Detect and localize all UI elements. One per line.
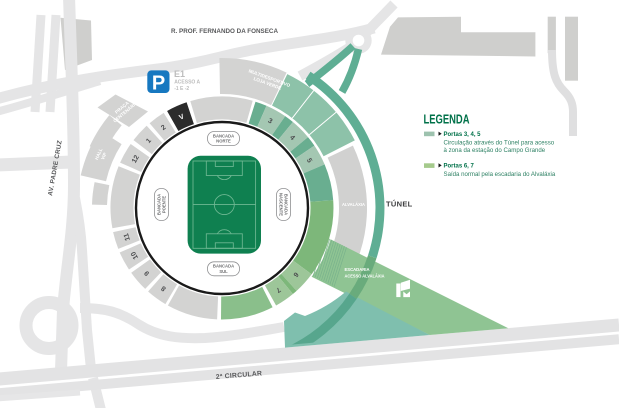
svg-text:NORTE: NORTE xyxy=(216,139,231,144)
svg-text:P: P xyxy=(152,72,165,94)
svg-text:ACESSO A: ACESSO A xyxy=(174,80,200,86)
svg-text:Circulação através do Túnel pa: Circulação através do Túnel para acesso xyxy=(444,139,555,146)
svg-text:NASCENTE: NASCENTE xyxy=(279,193,284,216)
svg-text:SUL: SUL xyxy=(219,269,228,274)
svg-text:Portas 6, 7: Portas 6, 7 xyxy=(444,164,475,170)
svg-text:R. PROF. FERNANDO DA FONSECA: R. PROF. FERNANDO DA FONSECA xyxy=(171,28,278,35)
svg-text:ESCADARIA: ESCADARIA xyxy=(345,267,370,273)
svg-text:ALVALÁXIA: ALVALÁXIA xyxy=(342,201,365,208)
svg-text:à zona da estação do Campo Gra: à zona da estação do Campo Grande xyxy=(444,147,546,154)
svg-text:-1 E -2: -1 E -2 xyxy=(174,86,189,92)
svg-text:Portas 3, 4, 5: Portas 3, 4, 5 xyxy=(444,132,482,138)
svg-text:ACESSO ALVALÁXIA: ACESSO ALVALÁXIA xyxy=(345,273,385,280)
svg-text:E1: E1 xyxy=(174,69,185,79)
svg-text:LEGENDA: LEGENDA xyxy=(424,113,470,127)
svg-text:POENTE: POENTE xyxy=(162,196,167,213)
svg-text:TÚNEL: TÚNEL xyxy=(386,200,413,209)
svg-text:Saída normal pela escadaria do: Saída normal pela escadaria do Alvaláxia xyxy=(444,171,556,178)
